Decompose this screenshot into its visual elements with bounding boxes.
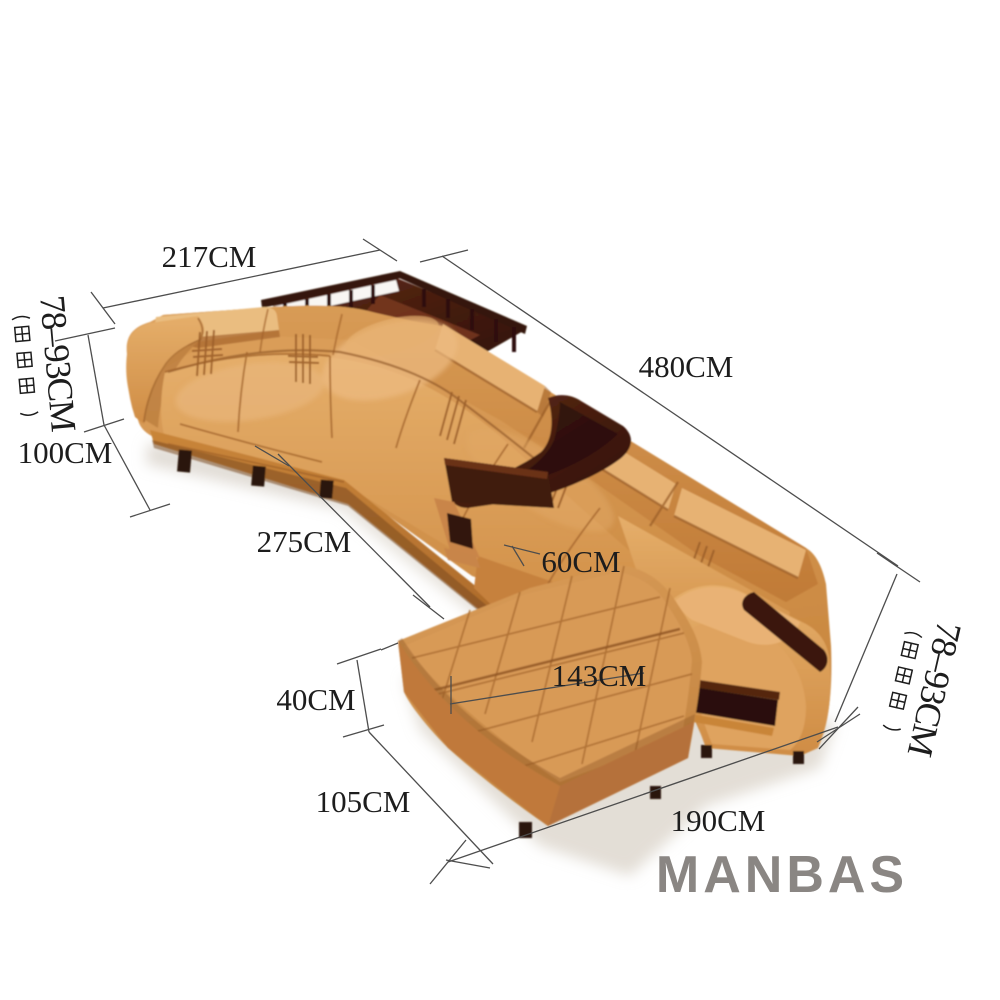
svg-text:100CM: 100CM [18,435,113,470]
svg-text:60CM: 60CM [541,544,620,579]
svg-text:217CM: 217CM [162,239,257,274]
svg-text:275CM: 275CM [257,524,352,559]
svg-text:MANBAS: MANBAS [656,846,908,904]
svg-text:143CM: 143CM [552,658,647,693]
svg-text:190CM: 190CM [671,803,766,838]
svg-text:40CM: 40CM [276,682,355,717]
svg-text:480CM: 480CM [639,349,734,384]
svg-text:105CM: 105CM [316,784,411,819]
